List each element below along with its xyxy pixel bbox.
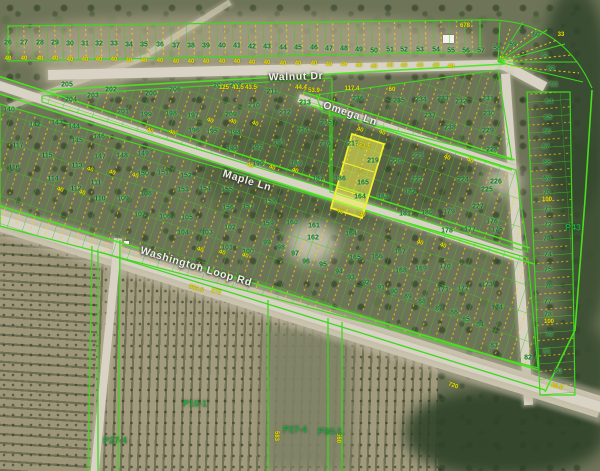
lot-label: 71 [544,207,552,214]
map-canvas[interactable]: 2627282930313233343536373839404142434445… [0,0,600,471]
lot-label: 85 [462,317,470,324]
lot-label: 226 [490,179,502,186]
lot-label: 154 [199,186,211,193]
dim-label: 117.4 [345,86,360,92]
lot-label: 158 [264,199,276,206]
lot-label: 26 [4,40,12,47]
dim-label: 40 [21,56,28,62]
lot-label: 198 [165,111,177,118]
lot-label: 31 [81,41,89,48]
dim-label: 40 [111,57,118,63]
lot-label: 35 [140,42,148,49]
dim-label: 125 [219,85,229,91]
dim-label: 583 [273,431,279,441]
lot-label: 107 [134,212,146,219]
lot-label: 99 [263,240,271,247]
lot-label: 110 [94,196,105,203]
lot-label: 64 [545,99,553,106]
lot-label: 116 [8,165,19,172]
dim-label: 40 [358,211,366,219]
lot-label: 63 [550,82,558,89]
dim-label: 40 [131,172,139,180]
lot-label: 57 [477,48,485,55]
dim-label: 44.4 [295,85,307,91]
dim-label: 40 [52,56,59,62]
lot-label: 203 [87,93,99,100]
lot-label: 93 [347,275,355,282]
lot-label: 76 [545,283,553,290]
dim-label: 40 [141,58,148,64]
dim-label: 40 [86,166,94,174]
dim-label: 40 [280,61,287,67]
lot-label: 222 [411,177,423,184]
lot-label: 88 [418,299,426,306]
lot-label: 227 [472,204,484,211]
lot-label: 62 [547,66,555,73]
lot-label: 164 [354,194,366,201]
lot-label: 210 [248,103,260,110]
lot-label: 46 [310,45,318,52]
lot-label: 105 [181,215,193,222]
lot-label: 224 [457,177,469,184]
dim-label: 40 [311,61,318,67]
lot-label: 215 [320,120,332,127]
street-label: Walnut Dr [269,71,324,83]
lot-label: 49 [355,47,363,54]
dim-label: 40 [264,60,271,66]
lot-label: 156 [222,205,234,212]
lot-label: 96 [302,259,310,266]
lot-label: 83 [490,343,498,350]
lot-label: 196 [188,128,200,135]
lot-label: 92 [362,280,370,287]
lot-label: 50 [370,48,378,55]
lot-label: 206 [169,87,181,94]
lot-label: 33 [110,41,118,48]
dim-label: 273 [210,288,221,297]
lot-label: 66 [543,129,551,136]
lot-label: 67 [542,144,550,151]
dim-label: 40 [356,63,363,69]
dim-label: 40 [439,242,447,250]
dim-label: 40 [5,56,12,62]
dim-label: 40 [417,63,424,69]
lot-label: 89 [404,294,412,301]
dim-label: 40 [229,118,237,126]
lot-label: 79 [545,332,553,339]
lot-label: 54 [432,47,440,54]
lot-label: 47 [325,46,333,53]
lot-label: 153 [177,187,189,194]
map-labels-layer: 2627282930313233343536373839404142434445… [0,0,600,471]
lot-label: 231 [482,96,494,103]
dim-label: 40 [157,58,164,64]
lot-label: 87 [435,306,443,313]
lot-label: 80 [554,369,562,376]
lot-label: 160 [286,220,298,227]
lot-label: 36 [156,42,164,49]
lot-label: 98 [277,245,285,252]
lot-label: 167 [394,249,406,256]
lot-label: 43 [263,44,271,51]
dim-label: 40 [249,60,256,66]
lot-label: 53 [416,47,424,54]
dim-label: 40 [416,239,424,247]
lot-label: 82 [524,355,532,362]
lot-label: 162 [307,235,319,242]
lot-label: 225 [481,187,493,194]
lot-label: 59 [509,42,517,49]
lot-label: 86 [450,310,458,317]
lot-label: 146 [93,134,105,141]
lot-label: 140 [3,107,15,114]
dim-label: 40 [82,57,89,63]
lot-label: 192 [251,145,263,152]
dim-label: 40 [241,252,249,260]
lot-label: 147 [94,154,106,161]
dim-label: 43.5 [245,85,257,91]
dim-label: 40 [246,162,254,170]
lot-label: 197 [187,113,199,120]
lot-label: 40 [218,43,226,50]
lot-label: 30 [66,41,74,48]
lot-label: 78 [544,312,552,319]
lot-label: 69 [543,176,551,183]
lot-label: 95 [319,262,327,269]
lot-label: 181 [399,211,411,218]
lot-label: 187 [312,176,324,183]
lot-label: 194 [229,130,241,137]
lot-label: 216 [319,141,331,148]
dim-label: 100 [544,319,554,325]
lot-label: 166 [371,254,383,261]
lot-label: 176 [486,219,498,226]
lot-label: 213 [299,100,311,107]
lot-label: 235 [393,98,405,105]
lot-label: 91 [377,285,385,292]
lot-label: 169 [415,266,427,273]
lot-label: 237 [424,113,436,120]
lot-label: 56 [462,48,470,55]
lot-label: 205 [61,82,73,89]
parcel-label: P27-4 [103,437,127,446]
dim-label: 100 [542,197,552,203]
dim-label: 40 [196,246,204,254]
lot-label: 48 [340,46,348,53]
lot-label: 214 [297,128,309,135]
lot-label: 151 [157,170,169,177]
lot-label: 68 [543,160,551,167]
lot-label: 145 [71,138,83,145]
lot-label: 182 [404,189,416,196]
dim-label: 40 [433,63,440,69]
dim-label: 40 [356,126,364,134]
lot-label: 70 [543,190,551,197]
dim-label: 40 [219,59,226,65]
lot-label: 238 [444,125,456,132]
lot-label: 73 [543,236,551,243]
lot-label: 55 [447,48,455,55]
lot-label: 102 [224,225,236,232]
dim-label: 40 [448,64,455,70]
lot-label: 41 [233,43,241,50]
lot-label: 148 [116,153,128,160]
lot-label: 174 [491,305,503,312]
lot-label: 84 [476,322,484,329]
lot-label: 42 [248,44,256,51]
dim-label: 40 [146,127,154,135]
lot-label: 178 [441,228,453,235]
lot-label: 113 [71,163,82,170]
lot-label: 109 [117,196,129,203]
lot-label: 199 [140,112,152,119]
lot-label: 90 [390,289,398,296]
lot-label: 211 [266,89,277,96]
lot-label: 230 [483,111,495,118]
lot-label: 52 [400,47,408,54]
lot-label: 27 [20,40,28,47]
lot-label: 114 [47,176,58,183]
lot-label: 212 [279,110,291,117]
lot-label: 94 [335,269,343,276]
lot-label: 161 [308,223,320,230]
lot-label: 115 [41,153,52,160]
lot-label: 77 [544,299,552,306]
parcel-label: P10-1 [183,400,207,409]
lot-label: 173 [481,282,493,289]
dim-label: 40 [96,57,103,63]
lot-label: 221 [412,153,424,160]
dim-label: 40 [67,57,74,63]
dim-label: 40 [371,64,378,70]
lot-label: 65 [544,115,552,122]
dim-label: 40 [37,56,44,62]
lot-label: 74 [544,252,552,259]
lot-label: 75 [544,267,552,274]
dim-label: 40 [203,59,210,65]
dim-label: 40 [78,189,86,197]
lot-label: 111 [91,180,102,187]
dim-label: 40 [341,62,348,68]
dim-label: 40 [326,62,333,68]
dim-label: 40 [378,129,386,137]
dim-label: 40 [173,59,180,65]
parcel-label: P34-1 [318,428,342,437]
lot-label: 183 [377,194,389,201]
lot-label: 165 [349,255,361,262]
lot-label: 142 [29,122,41,129]
lot-label: 103 [201,230,213,237]
lot-label: 179 [443,209,455,216]
dim-label: 33 [558,32,565,38]
lot-label: 108 [140,191,152,198]
lot-label: 175 [491,227,503,234]
dim-label: 40 [126,58,133,64]
dim-label: 382.5 [188,284,204,294]
lot-label: 229 [482,128,494,135]
lot-label: 81 [543,349,551,356]
dim-label: 40 [466,157,474,165]
lot-label: 201 [117,109,129,116]
lot-label: 58 [493,46,501,53]
lot-label: 61 [541,53,549,60]
lot-label: 37 [172,43,180,50]
parcel-label: P27-4 [283,426,307,435]
dim-label: 40 [268,164,276,172]
dim-label: 40 [108,169,116,177]
lot-label: 236 [352,96,364,103]
lot-label: 38 [187,43,195,50]
lot-label: 106 [159,214,171,221]
lot-label: 117 [12,143,23,150]
lot-label: 144 [68,124,80,131]
dim-label: 40 [387,63,394,69]
dim-label: 678 [460,23,470,29]
lot-label: 168 [395,268,407,275]
lot-label: 152 [180,173,192,180]
lot-label: 228 [486,147,498,154]
lot-label: 149 [137,151,149,158]
lot-label: 104 [177,230,189,237]
lot-label: 39 [202,43,210,50]
dim-label: 40 [206,117,214,125]
lot-label: 159 [262,221,274,228]
dim-label: 720 [447,381,458,390]
lot-label: 219 [367,158,379,165]
lot-label: 191 [273,140,285,147]
dim-label: 40 [291,167,299,175]
lot-label: 193 [226,146,238,153]
lot-label: 232 [455,99,467,106]
dim-label: 53.9 [308,88,320,94]
lot-label: 170 [439,264,451,271]
lot-label: 164 [345,231,357,238]
dim-label: 41.5 [232,85,244,91]
lot-label: 177 [464,227,476,234]
lot-label: 200 [145,91,157,98]
dim-label: 40 [295,61,302,67]
lot-label: 44 [279,45,287,52]
lot-label: 28 [36,40,44,47]
dim-label: 85.8 [551,383,564,392]
lot-label: 172 [457,286,469,293]
lot-label: 165 [357,180,369,187]
lot-label: 157 [242,204,254,211]
lot-label: 233 [437,96,449,103]
dim-label: 40 [251,120,259,128]
lot-label: 204 [65,97,77,104]
dim-label: 40 [336,208,344,216]
dim-label: 40 [443,154,451,162]
dim-label: 60 [389,87,396,93]
lot-label: 45 [294,45,302,52]
lot-label: 180 [421,210,433,217]
lot-label: 29 [51,40,59,47]
lot-label: 220 [390,159,402,166]
lot-label: 234 [415,97,427,104]
lot-label: 72 [544,222,552,229]
dim-label: 40 [168,129,176,137]
lot-label: 186 [334,176,346,183]
dim-label: 40 [234,59,241,65]
lot-label: 171 [437,287,449,294]
lot-label: 34 [125,42,133,49]
dim-label: 40 [218,249,226,257]
lot-label: 202 [105,87,117,94]
lot-label: 51 [386,47,394,54]
dim-label: 40 [401,63,408,69]
lot-label: 97 [291,251,299,258]
dim-label: 40 [56,186,64,194]
lot-label: 32 [95,41,103,48]
parcel-label: P43 [565,224,581,233]
lot-label: 195 [206,129,218,136]
lot-label: 60 [532,32,540,39]
dim-label: 121.5 [355,141,371,151]
lot-label: 155 [221,187,233,194]
dim-label: 40 [188,59,195,65]
lot-label: 143 [51,120,63,127]
